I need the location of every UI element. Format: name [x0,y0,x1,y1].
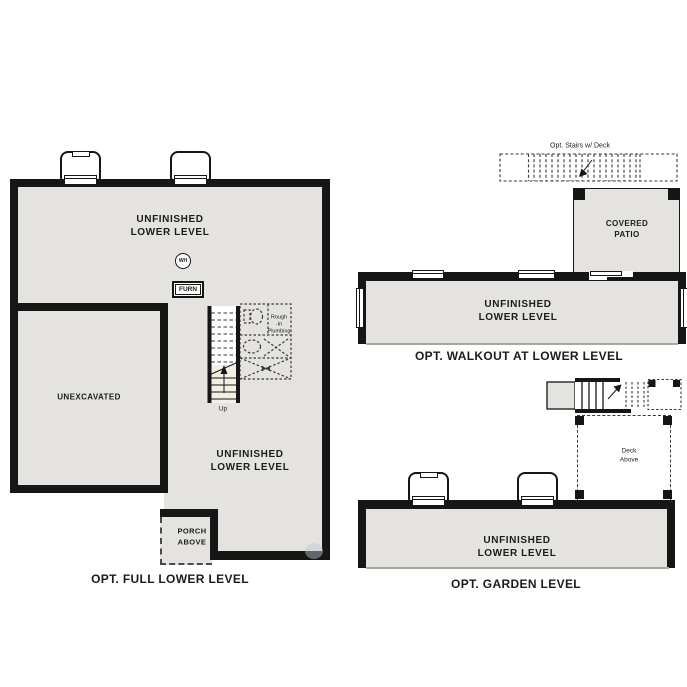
caption-full-lower-level: OPT. FULL LOWER LEVEL [91,572,249,586]
wall [358,500,675,509]
wall [667,500,675,568]
room-label-unexcavated: UNEXCAVATED [57,393,121,402]
tub-drain-symbol [266,366,270,372]
rough-in-plumbing-label: Rough -In Plumbing [268,314,291,335]
opt-deck-stairs [497,149,681,186]
floorplan-sheet: WH FURN UNFINISHED LOWER LEVEL UNEXCAVAT… [0,0,687,687]
wall [358,500,366,568]
window [356,288,364,328]
watermark [305,543,323,559]
window [518,270,555,279]
wall [160,303,168,493]
stairs-up-label: Up [219,406,227,413]
tub-drain-symbol [262,366,266,372]
room-label-unfinished-lower: UNFINISHED LOWER LEVEL [211,448,290,474]
plan-cut-line [366,567,669,569]
window [64,175,97,185]
window-well-ladder [420,472,438,478]
window [412,270,444,279]
deck-post [575,490,584,499]
water-heater-label: WH [179,258,187,264]
room-label-walkout-room: UNFINISHED LOWER LEVEL [479,298,558,324]
window [174,175,207,185]
opt-stairs-label: Opt. Stairs w/ Deck [550,143,610,150]
wall [10,485,168,493]
sliding-door-panel [607,277,633,280]
stairs-up [205,305,243,405]
wall [10,303,168,311]
patio-post [668,189,679,200]
room-label-porch-above: PORCH ABOVE [177,527,206,548]
wall [322,179,330,560]
deck-post [663,490,672,499]
furnace-symbol: FURN [172,281,204,298]
plan-cut-line [366,343,678,345]
window-well-ladder [72,151,90,157]
window [412,496,445,506]
deck-above-label: Deck Above [620,447,638,466]
furnace-label: FURN [175,284,201,295]
water-heater-symbol: WH [175,253,191,269]
deck-post [575,416,584,425]
deck-stairs [544,375,686,417]
window [680,288,687,328]
caption-walkout-lower-level: OPT. WALKOUT AT LOWER LEVEL [415,349,623,363]
patio-post [574,189,585,200]
room-label-garden-room: UNFINISHED LOWER LEVEL [478,534,557,560]
wall [10,179,18,493]
sliding-door-panel [590,271,622,276]
rough-in-plumbing-area [237,301,294,382]
caption-garden-level: OPT. GARDEN LEVEL [451,577,581,591]
deck-post [663,416,672,425]
stair-direction-arrow [579,169,588,178]
room-label-unfinished-upper: UNFINISHED LOWER LEVEL [131,213,210,239]
room-label-covered-patio: COVERED PATIO [606,218,648,240]
window [521,496,554,506]
